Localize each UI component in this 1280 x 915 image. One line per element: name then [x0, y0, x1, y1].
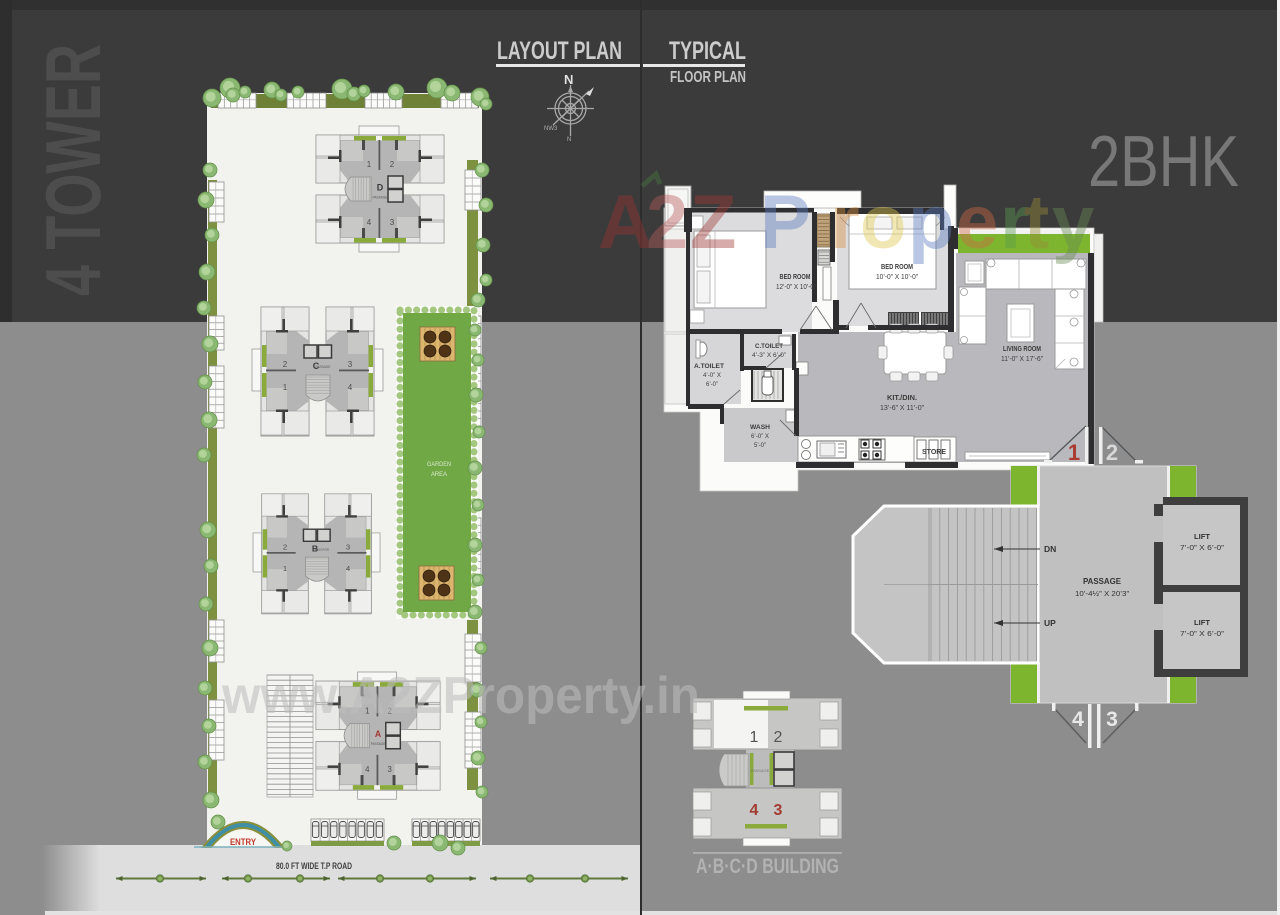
svg-text:2: 2 — [283, 543, 287, 552]
svg-text:3: 3 — [390, 218, 395, 227]
svg-text:7’-0” X 6’-0”: 7’-0” X 6’-0” — [1180, 631, 1225, 638]
svg-text:y: y — [1052, 180, 1094, 265]
svg-text:A·B·C·D BUILDING: A·B·C·D BUILDING — [696, 855, 839, 878]
svg-text:AREA: AREA — [431, 471, 448, 478]
svg-text:3: 3 — [346, 543, 350, 552]
svg-text:LIFT: LIFT — [1194, 618, 1210, 627]
svg-text:4: 4 — [346, 564, 350, 573]
svg-text:4: 4 — [365, 765, 370, 774]
svg-text:D: D — [377, 183, 384, 193]
svg-text:A: A — [375, 729, 382, 739]
svg-text:C.TOILET: C.TOILET — [755, 343, 783, 350]
svg-text:10’-0” X 10’-0”: 10’-0” X 10’-0” — [876, 274, 919, 281]
svg-text:P: P — [760, 180, 811, 265]
svg-text:Z: Z — [690, 180, 736, 265]
svg-text:A: A — [598, 180, 653, 265]
svg-text:PASSAGE: PASSAGE — [373, 196, 388, 200]
svg-text:N: N — [564, 72, 573, 87]
svg-text:80.0 FT WIDE T.P ROAD: 80.0 FT WIDE T.P ROAD — [276, 861, 352, 871]
svg-text:1: 1 — [367, 160, 372, 169]
svg-text:PASSAGE: PASSAGE — [751, 768, 770, 773]
svg-text:r: r — [830, 180, 860, 265]
svg-text:2: 2 — [774, 729, 783, 746]
svg-text:KIT./DIN.: KIT./DIN. — [887, 393, 917, 402]
svg-text:2: 2 — [1106, 440, 1118, 465]
svg-text:p: p — [908, 180, 954, 265]
svg-text:4’-3” X 6’-0”: 4’-3” X 6’-0” — [752, 353, 786, 359]
svg-text:A.TOILET: A.TOILET — [694, 363, 724, 370]
svg-text:4 TOWER: 4 TOWER — [29, 44, 117, 296]
svg-text:6’-0”: 6’-0” — [706, 382, 718, 388]
svg-text:GARDEN: GARDEN — [427, 461, 451, 468]
svg-text:1: 1 — [1068, 440, 1080, 465]
svg-text:LAYOUT PLAN: LAYOUT PLAN — [497, 37, 622, 65]
svg-text:www.A2ZProperty.in: www.A2ZProperty.in — [221, 667, 700, 725]
svg-text:10’-4½” X 20’3”: 10’-4½” X 20’3” — [1075, 589, 1130, 598]
svg-text:LIVING ROOM: LIVING ROOM — [1003, 344, 1041, 353]
svg-text:1: 1 — [750, 729, 759, 746]
svg-text:4’-0” X: 4’-0” X — [703, 373, 721, 379]
svg-text:3: 3 — [1106, 708, 1118, 731]
svg-text:2: 2 — [390, 160, 395, 169]
svg-text:5’-0”: 5’-0” — [754, 443, 766, 449]
svg-text:1: 1 — [283, 383, 288, 392]
svg-text:12’-0” X 10’-0”: 12’-0” X 10’-0” — [776, 284, 817, 291]
svg-text:WASH: WASH — [750, 424, 770, 431]
svg-text:e: e — [956, 180, 998, 265]
svg-text:11’-0” X 17’-6”: 11’-0” X 17’-6” — [1001, 356, 1044, 363]
svg-text:7’-0” X 6’-0”: 7’-0” X 6’-0” — [1180, 545, 1225, 552]
svg-text:N: N — [567, 137, 571, 143]
svg-text:2BHK: 2BHK — [1088, 122, 1239, 202]
svg-text:PASSAGE: PASSAGE — [371, 742, 386, 746]
svg-text:FLOOR PLAN: FLOOR PLAN — [670, 69, 746, 86]
svg-text:STORE: STORE — [922, 449, 946, 456]
svg-text:3: 3 — [774, 802, 783, 819]
svg-text:4: 4 — [367, 218, 372, 227]
svg-text:4: 4 — [1072, 708, 1084, 731]
svg-text:PASSAGE: PASSAGE — [1083, 576, 1121, 586]
svg-text:3: 3 — [348, 360, 353, 369]
svg-text:6’-0” X: 6’-0” X — [751, 434, 769, 440]
svg-text:t: t — [1024, 180, 1049, 265]
svg-text:2: 2 — [646, 180, 688, 265]
svg-text:NW3: NW3 — [544, 126, 558, 132]
svg-text:o: o — [860, 180, 906, 265]
svg-text:PASSAGE: PASSAGE — [315, 548, 330, 552]
svg-text:1: 1 — [283, 564, 287, 573]
svg-text:4: 4 — [750, 802, 759, 819]
svg-text:TYPICAL: TYPICAL — [669, 37, 746, 65]
svg-text:PASSAGE: PASSAGE — [316, 365, 331, 369]
svg-text:13’-6” X 11’-0”: 13’-6” X 11’-0” — [880, 405, 925, 412]
svg-text:LIFT: LIFT — [1194, 532, 1210, 541]
svg-text:3: 3 — [388, 765, 393, 774]
svg-text:4: 4 — [348, 383, 353, 392]
svg-text:UP: UP — [1044, 618, 1056, 628]
svg-text:BED ROOM: BED ROOM — [780, 272, 811, 281]
svg-text:DN: DN — [1044, 544, 1056, 554]
svg-text:2: 2 — [283, 360, 288, 369]
